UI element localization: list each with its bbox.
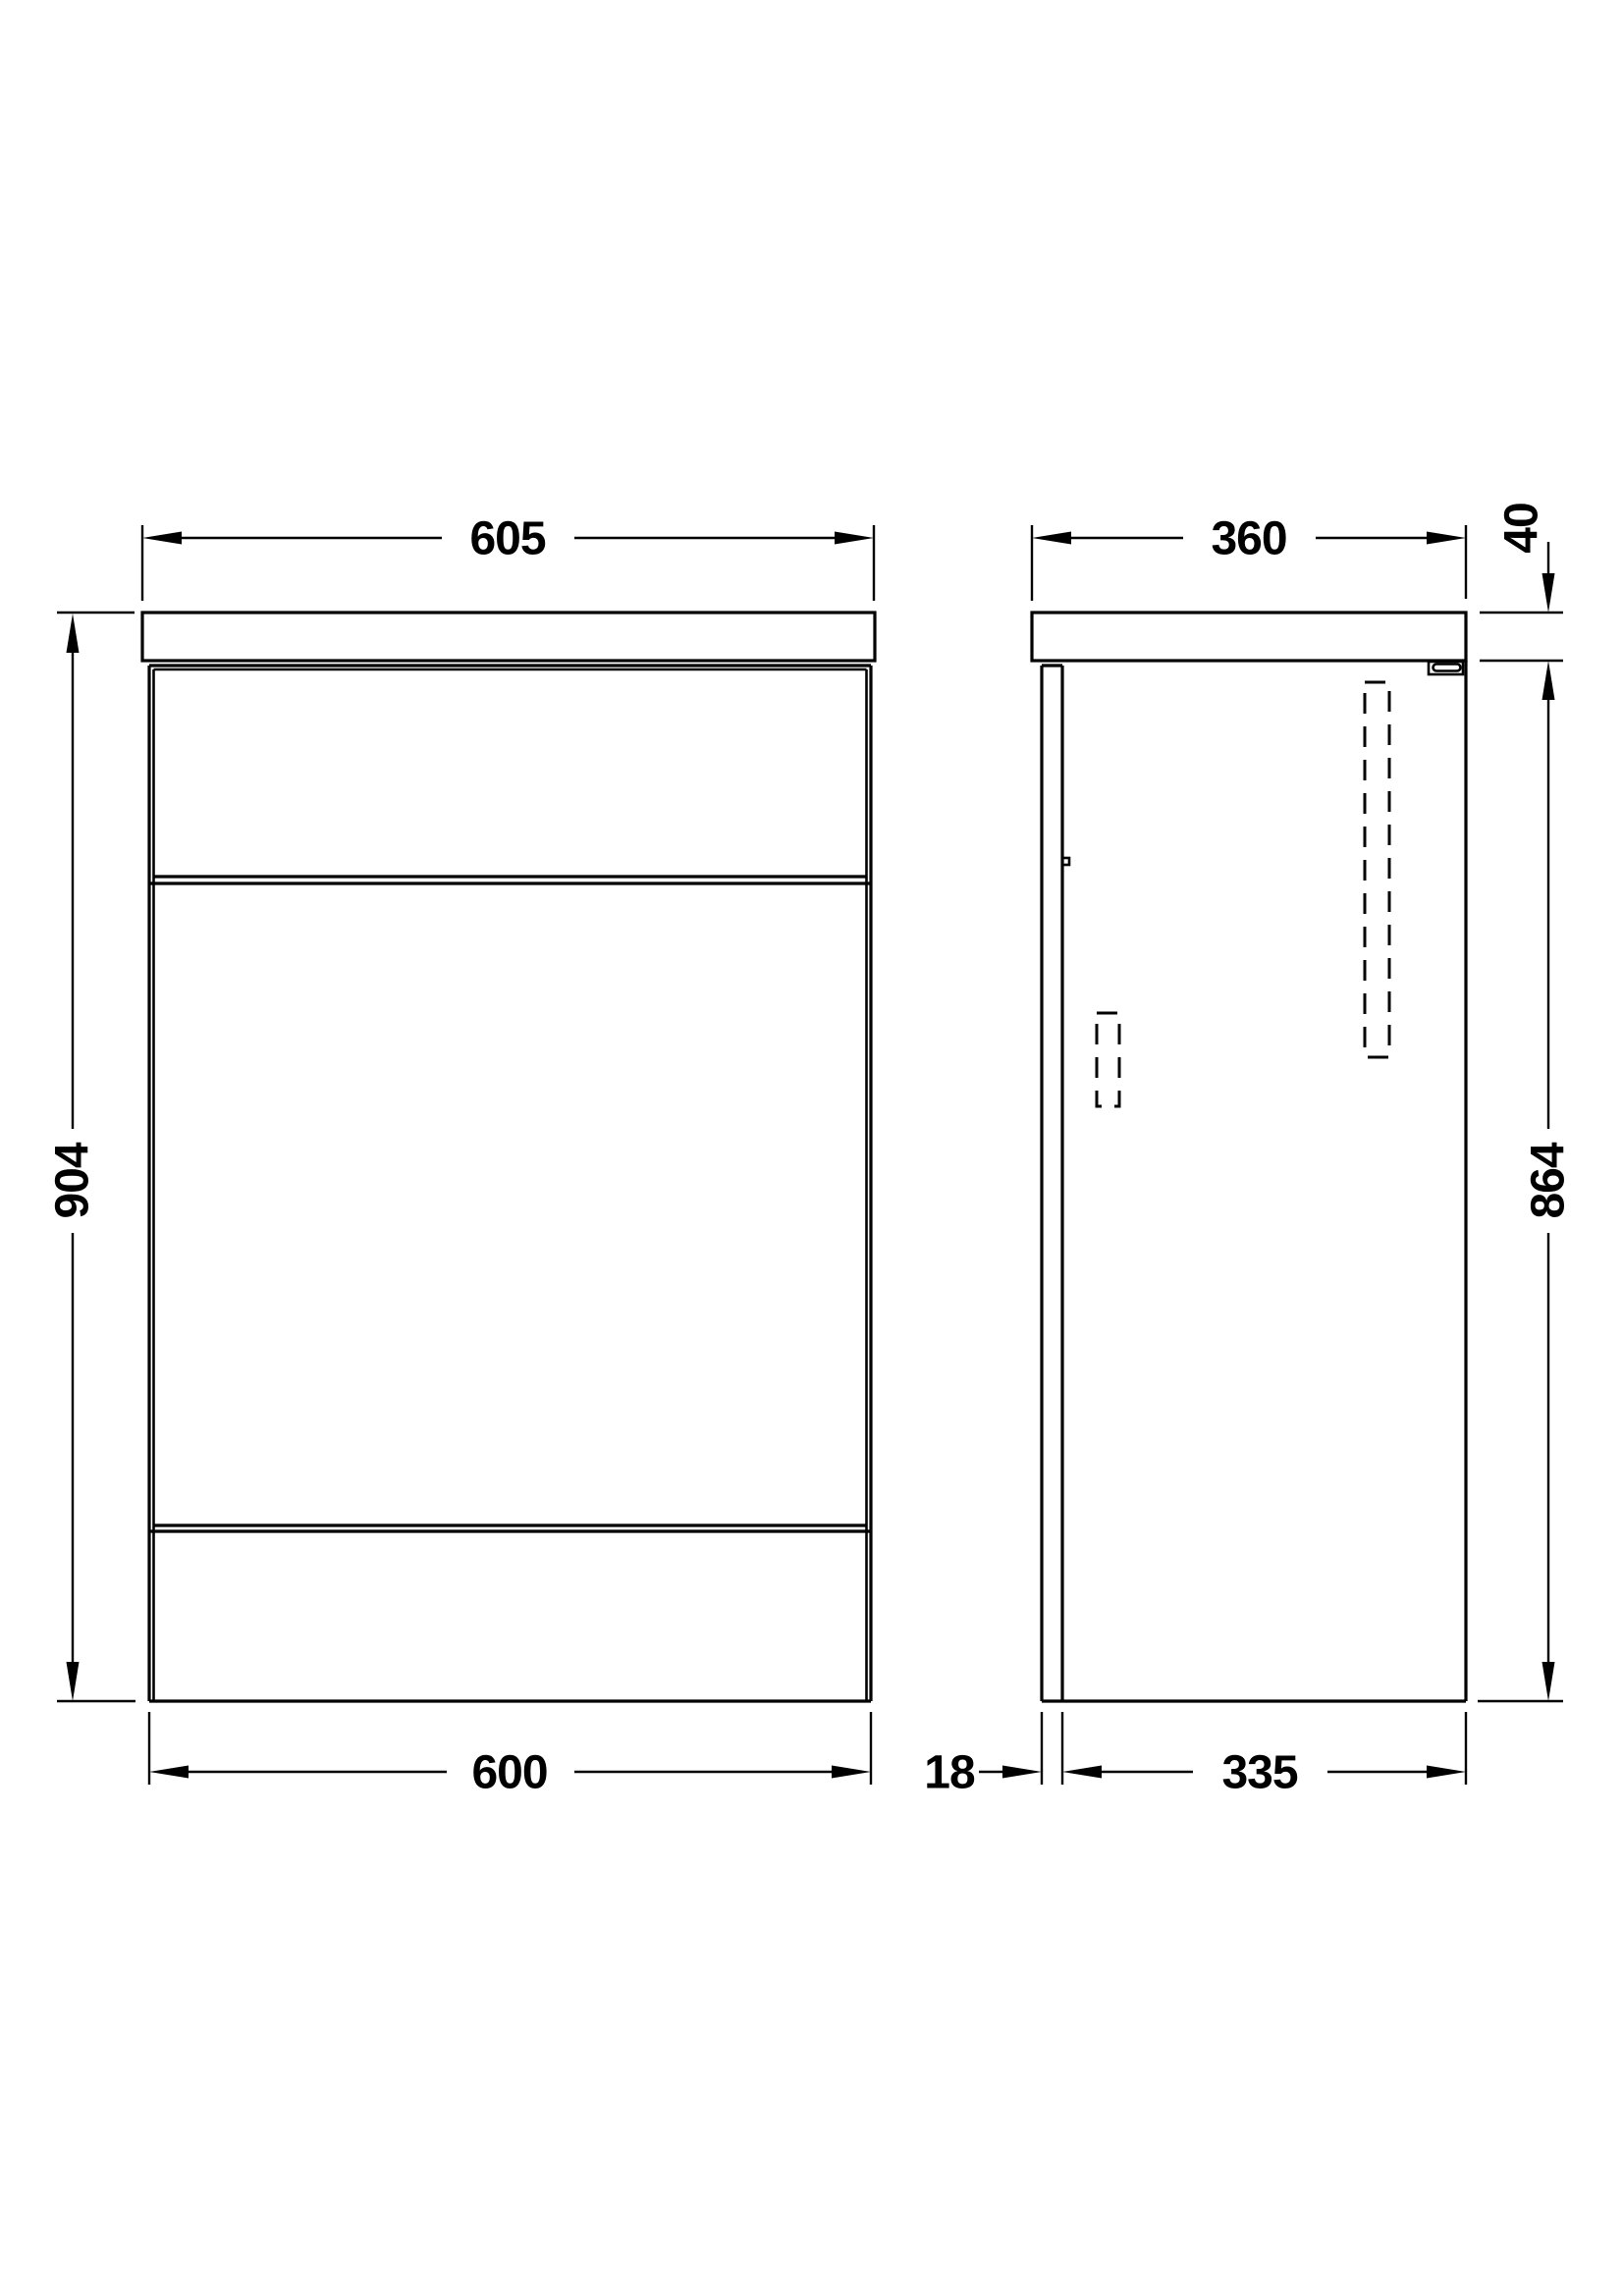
drawing-sheet: 605 904 600 bbox=[0, 0, 1623, 2296]
side-panel-joint-notch bbox=[1062, 858, 1069, 865]
dim-904-arrow-top bbox=[67, 614, 80, 653]
side-hidden-hinge-plate-short bbox=[1097, 1013, 1119, 1106]
side-view bbox=[1032, 613, 1466, 1701]
dim-40-arrow-up bbox=[1542, 661, 1555, 700]
front-worktop bbox=[142, 613, 875, 661]
dim-40-label: 40 bbox=[1496, 503, 1548, 553]
dim-front-width-top: 605 bbox=[142, 513, 874, 602]
dim-cabinet-height: 864 bbox=[1478, 700, 1575, 1701]
dim-605-label: 605 bbox=[469, 513, 545, 565]
dim-605-arrow-right bbox=[835, 532, 874, 545]
dim-864-label: 864 bbox=[1523, 1142, 1575, 1218]
front-view bbox=[142, 613, 875, 1701]
dim-600-arrow-left bbox=[149, 1766, 189, 1779]
dim-904-arrow-bottom bbox=[67, 1662, 80, 1701]
dim-panel-thickness: 18 bbox=[924, 1712, 1062, 1799]
dim-18-label: 18 bbox=[924, 1747, 975, 1799]
dim-335-arrow-left bbox=[1062, 1766, 1102, 1779]
dim-40-arrow-down bbox=[1542, 573, 1555, 613]
vanity-unit-technical-drawing: 605 904 600 bbox=[0, 0, 1623, 2296]
dim-360-arrow-right bbox=[1427, 532, 1466, 545]
dim-worktop-thickness: 40 bbox=[1480, 503, 1563, 700]
dim-front-width-bottom: 600 bbox=[149, 1712, 871, 1799]
side-worktop bbox=[1032, 613, 1466, 661]
dim-335-label: 335 bbox=[1221, 1747, 1297, 1799]
dim-cabinet-depth: 335 bbox=[1062, 1712, 1466, 1799]
dim-360-arrow-left bbox=[1032, 532, 1071, 545]
dim-360-label: 360 bbox=[1211, 513, 1286, 565]
dim-front-height: 904 bbox=[47, 613, 136, 1701]
side-fixing-bracket-slot bbox=[1434, 665, 1461, 671]
dim-904-label: 904 bbox=[47, 1142, 99, 1218]
dim-18-arrow-right bbox=[1002, 1766, 1042, 1779]
side-hidden-hinge-plate-tall bbox=[1365, 682, 1389, 1057]
dim-side-depth: 360 bbox=[1032, 513, 1466, 602]
dim-864-arrow-bottom bbox=[1542, 1662, 1555, 1701]
dim-605-arrow-left bbox=[142, 532, 182, 545]
dim-600-arrow-right bbox=[832, 1766, 871, 1779]
dim-335-arrow-right bbox=[1427, 1766, 1466, 1779]
dim-600-label: 600 bbox=[471, 1747, 547, 1799]
